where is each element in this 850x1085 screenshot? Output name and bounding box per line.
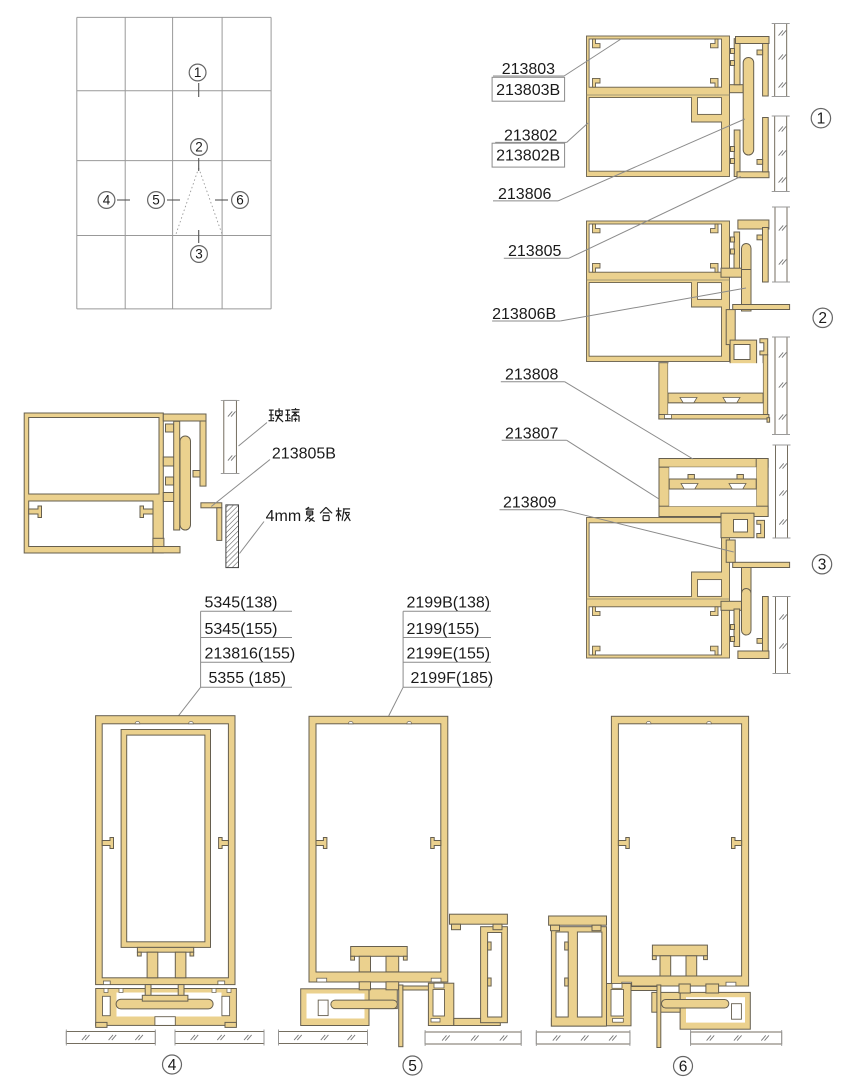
svg-text:3: 3 <box>195 247 203 262</box>
svg-text:213806B: 213806B <box>492 306 556 323</box>
svg-text:2199F(185): 2199F(185) <box>411 670 494 687</box>
svg-text:2199E(155): 2199E(155) <box>407 646 491 663</box>
svg-text:3: 3 <box>818 557 827 574</box>
svg-text:2199(155): 2199(155) <box>407 621 480 638</box>
svg-text:2: 2 <box>818 310 827 327</box>
svg-text:4: 4 <box>103 193 111 208</box>
svg-text:213803B: 213803B <box>496 82 560 99</box>
svg-text:213802: 213802 <box>504 127 557 144</box>
svg-text:213808: 213808 <box>505 367 558 384</box>
svg-text:5345(138): 5345(138) <box>205 595 278 612</box>
svg-text:2: 2 <box>195 140 203 155</box>
svg-text:5355 (185): 5355 (185) <box>209 670 286 687</box>
svg-text:1: 1 <box>817 111 826 128</box>
svg-text:213807: 213807 <box>505 425 558 442</box>
svg-text:5: 5 <box>152 193 160 208</box>
svg-text:213805: 213805 <box>508 243 561 260</box>
svg-text:1: 1 <box>194 65 202 80</box>
svg-text:6: 6 <box>679 1058 688 1075</box>
svg-text:5: 5 <box>408 1058 417 1075</box>
svg-text:213816(155): 213816(155) <box>205 646 296 663</box>
svg-text:6: 6 <box>236 193 244 208</box>
svg-text:213803: 213803 <box>502 61 555 78</box>
svg-text:213802B: 213802B <box>496 148 560 165</box>
svg-text:5345(155): 5345(155) <box>205 621 278 638</box>
svg-text:2199B(138): 2199B(138) <box>407 595 491 612</box>
svg-text:4mm: 4mm <box>266 508 302 525</box>
svg-text:4: 4 <box>168 1057 177 1074</box>
svg-text:213806: 213806 <box>498 186 551 203</box>
svg-text:213805B: 213805B <box>272 446 336 463</box>
svg-text:213809: 213809 <box>503 495 556 512</box>
